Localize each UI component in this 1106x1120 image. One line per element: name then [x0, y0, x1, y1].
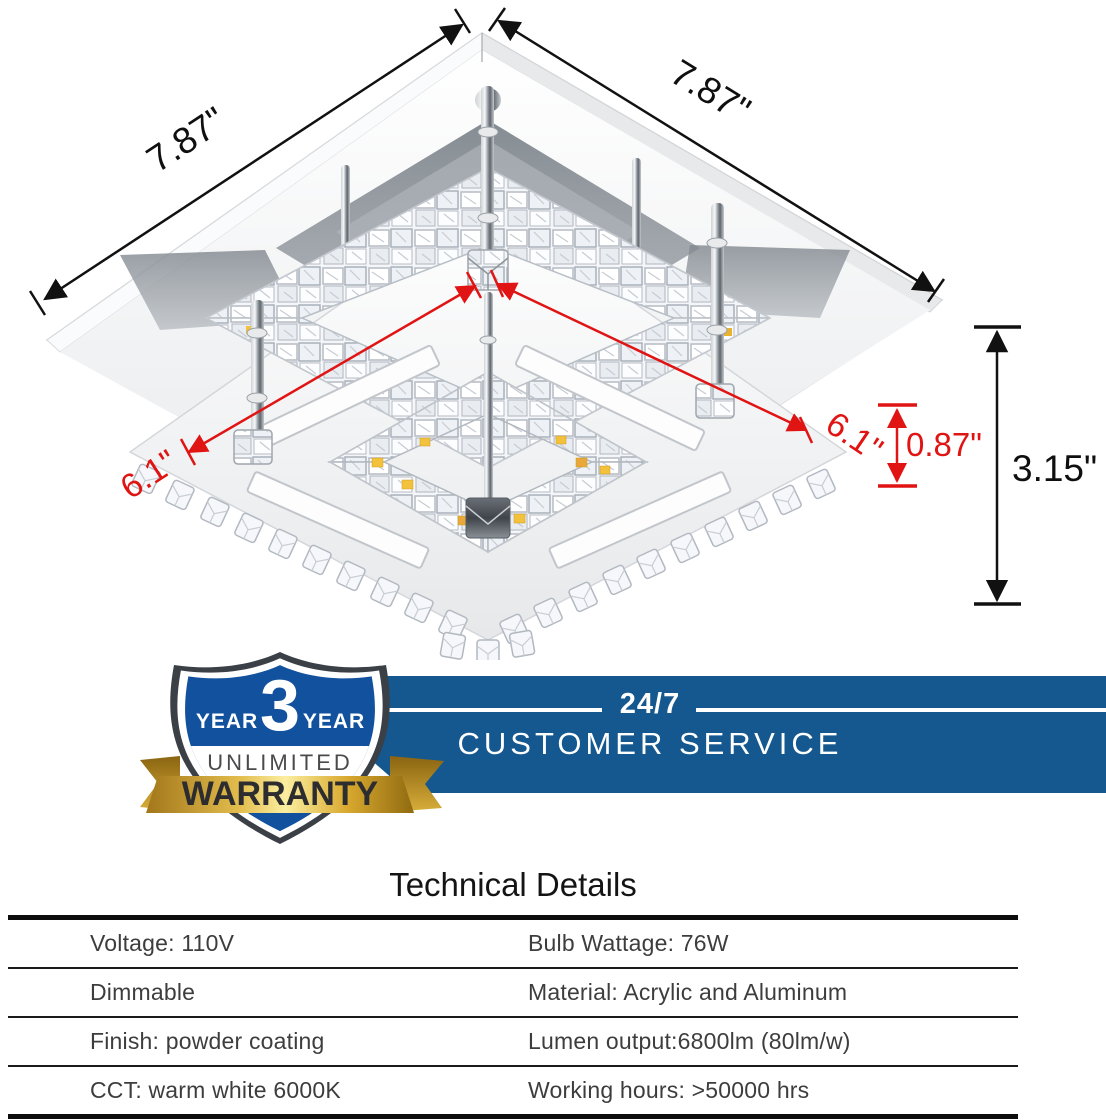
banner-247-text: 24/7 — [604, 688, 696, 721]
spec-voltage: Voltage: 110V — [8, 930, 528, 957]
customer-service-banner: 24/7 CUSTOMER SERVICE — [366, 676, 1106, 793]
spec-material: Material: Acrylic and Aluminum — [528, 979, 847, 1006]
table-row: Voltage: 110V Bulb Wattage: 76W — [8, 920, 1018, 969]
badge-year-right: YEAR — [303, 710, 365, 733]
badge-year-left: YEAR — [196, 710, 258, 733]
dim-label-total-height: 3.15" — [1012, 448, 1097, 489]
dim-label-ring-height: 0.87" — [906, 426, 982, 463]
spec-finish: Finish: powder coating — [8, 1028, 528, 1055]
tech-details-table: Voltage: 110V Bulb Wattage: 76W Dimmable… — [8, 915, 1018, 1119]
product-diagram: 7.87" 7.87" 3.15" 6.1" 6.1" 0.87" — [0, 0, 1106, 660]
spec-cct: CCT: warm white 6000K — [8, 1077, 528, 1104]
product-page: 7.87" 7.87" 3.15" 6.1" 6.1" 0.87" 24/7 C… — [0, 0, 1106, 1120]
spec-lumen-output: Lumen output:6800lm (80lm/w) — [528, 1028, 851, 1055]
banner-divider-right — [696, 708, 1106, 712]
spec-dimmable: Dimmable — [8, 979, 528, 1006]
table-row: CCT: warm white 6000K Working hours: >50… — [8, 1067, 1018, 1114]
dim-label-top-left: 7.87" — [139, 99, 233, 180]
badge-unlimited: UNLIMITED — [207, 750, 353, 775]
tech-details-title: Technical Details — [0, 866, 1026, 904]
warranty-ribbon: WARRANTY — [146, 775, 414, 813]
warranty-badge: YEAR 3 YEAR UNLIMITED WARRANTY — [128, 646, 458, 858]
table-row: Finish: powder coating Lumen output:6800… — [8, 1018, 1018, 1067]
shield: YEAR 3 YEAR UNLIMITED — [168, 652, 392, 844]
badge-warranty: WARRANTY — [182, 775, 379, 813]
spec-bulb-wattage: Bulb Wattage: 76W — [528, 930, 729, 957]
dim-label-top-right: 7.87" — [664, 52, 758, 131]
badge-year-number: 3 — [260, 666, 300, 746]
table-row: Dimmable Material: Acrylic and Aluminum — [8, 969, 1018, 1018]
spec-working-hours: Working hours: >50000 hrs — [528, 1077, 809, 1104]
